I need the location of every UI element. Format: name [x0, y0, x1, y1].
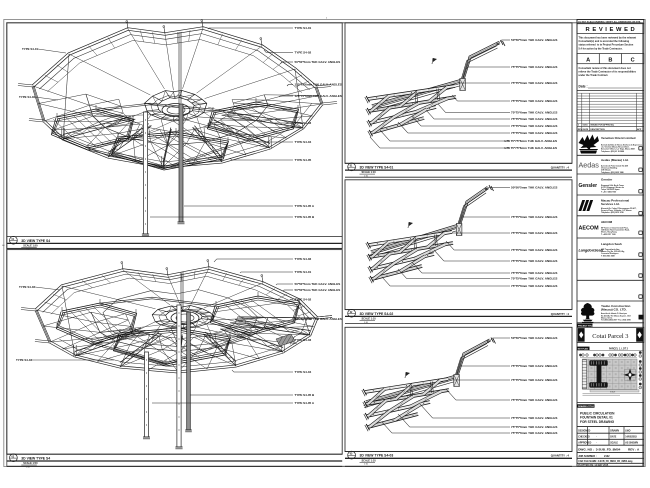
svg-text:50*50*5mm THK GALV. ANGLES: 50*50*5mm THK GALV. ANGLES — [295, 288, 341, 292]
svg-text:AECOM: AECOM — [601, 220, 613, 224]
svg-text:APPROVED: APPROVED — [578, 442, 591, 445]
svg-text:TYPE S4-03: TYPE S4-03 — [16, 358, 32, 362]
svg-text:T: +81 3 6406 7500: T: +81 3 6406 7500 — [601, 190, 616, 193]
svg-text:TYPE S4-01: TYPE S4-01 — [295, 270, 312, 274]
svg-text:TYPE S4-03: TYPE S4-03 — [295, 121, 312, 125]
svg-text:75*75*6mm THK GALV. ANGLES: 75*75*6mm THK GALV. ANGLES — [511, 364, 557, 368]
svg-text:JOB NUMBER :: JOB NUMBER : — [578, 455, 597, 458]
svg-text:Date :: Date : — [579, 85, 588, 89]
svg-text:Venetian Orient Limited: Venetian Orient Limited — [601, 136, 636, 140]
svg-text:75*75*6mm THK GALV. ANGLES: 75*75*6mm THK GALV. ANGLES — [511, 378, 557, 382]
svg-text:TYPE S4-05: TYPE S4-05 — [295, 158, 312, 162]
svg-text:AECOM: AECOM — [579, 226, 600, 232]
svg-text:T: +852 2317 7000: T: +852 2317 7000 — [601, 234, 616, 236]
svg-text:75*75*6mm THK GALV. ANGLES: 75*75*6mm THK GALV. ANGLES — [511, 124, 557, 128]
svg-text:R E V I E W E D: R E V I E W E D — [586, 27, 636, 33]
svg-text:TYPE S4-02: TYPE S4-02 — [19, 285, 35, 289]
svg-text:75*75*6mm THK GALV. ANGLES: 75*75*6mm THK GALV. ANGLES — [511, 248, 557, 252]
svg-text:C: C — [631, 57, 635, 63]
svg-text:75*75*6mm THK GALV. ANGLES: 75*75*6mm THK GALV. ANGLES — [511, 99, 557, 103]
svg-text:Gensler: Gensler — [579, 183, 598, 189]
svg-text:FOR STEEL DRAWING: FOR STEEL DRAWING — [580, 420, 615, 424]
svg-text:Consultant(s) and is accorded: Consultant(s) and is accorded the follow… — [579, 40, 630, 43]
svg-text:B: B — [608, 57, 612, 63]
svg-text:Consultant review of this docu: Consultant review of this document does … — [579, 67, 631, 70]
svg-text:75*75*6mm THK GALV. ANGLES: 75*75*6mm THK GALV. ANGLES — [511, 231, 557, 235]
svg-text:75*75*6mm THK GALV. ANGLES: 75*75*6mm THK GALV. ANGLES — [511, 416, 557, 420]
svg-text:75*75*6mm THK GALV. ANGLES: 75*75*6mm THK GALV. ANGLES — [511, 81, 557, 85]
svg-text:DATE: DATE — [610, 436, 617, 439]
svg-text:50*50*5mm THK GALV. ANGLES: 50*50*5mm THK GALV. ANGLES — [511, 38, 557, 42]
svg-text:Tel: (853) 2832 2877 Fax: 283: Tel: (853) 2832 2877 Fax: 2832 2878 — [601, 320, 631, 322]
svg-text:This document has been reviewe: This document has been reviewed by the r… — [579, 37, 637, 40]
svg-text:75*75*6mm THK GALV. ANGLES: 75*75*6mm THK GALV. ANGLES — [511, 398, 557, 402]
svg-text:DESIGNED: DESIGNED — [578, 430, 590, 432]
svg-text:relieve the Trade Contractor o: relieve the Trade Contractor of its resp… — [579, 70, 637, 73]
svg-text:APP: APP — [637, 128, 642, 131]
svg-text:Gensler: Gensler — [601, 178, 613, 182]
svg-text:TYPE S4-04: TYPE S4-04 — [295, 140, 312, 144]
svg-text:75*75*6mm THK GALV. ANGLES: 75*75*6mm THK GALV. ANGLES — [511, 215, 557, 219]
svg-text:TYPE S4-05 A: TYPE S4-05 A — [295, 204, 315, 208]
svg-text:TYPE S4-02: TYPE S4-02 — [295, 257, 312, 261]
svg-text:75*75*6mm THK GALV. ANGLES: 75*75*6mm THK GALV. ANGLES — [511, 65, 557, 69]
svg-text:DWG. NO : 3-SUB_FD_8M04: DWG. NO : 3-SUB_FD_8M04 — [578, 448, 620, 452]
svg-text:SCALE 1:50: SCALE 1:50 — [23, 462, 38, 465]
svg-text:SCALE 1:10: SCALE 1:10 — [362, 318, 377, 321]
svg-text:LangdonSeah: LangdonSeah — [579, 249, 604, 253]
svg-text:Telephone: (853) 2833 1988: Telephone: (853) 2833 1988 — [601, 172, 624, 174]
svg-text:AS SHOWN: AS SHOWN — [625, 442, 638, 445]
svg-text:5.4 for action by the Trade Co: 5.4 for action by the Trade Contractor. — [579, 47, 623, 50]
svg-text:ISSUED FOR APPROVAL: ISSUED FOR APPROVAL — [590, 124, 614, 127]
svg-text:QUANTITY : 4: QUANTITY : 4 — [551, 166, 570, 170]
svg-text:A: A — [586, 57, 590, 63]
svg-text:125*75*6mm THK GALV. ANGLES: 125*75*6mm THK GALV. ANGLES — [295, 94, 342, 98]
svg-text:50*50*5mm THK GALV. ANGLES: 50*50*5mm THK GALV. ANGLES — [295, 60, 341, 64]
svg-text:TYPE S4-04: TYPE S4-04 — [295, 370, 312, 374]
svg-text:125*75*6mm THK GALV. ANGLES: 125*75*6mm THK GALV. ANGLES — [295, 317, 342, 321]
svg-text:Aedas: Aedas — [579, 161, 600, 170]
svg-text:3D VIEW TYPE S4: 3D VIEW TYPE S4 — [21, 456, 50, 460]
svg-text:DRAWN: DRAWN — [610, 429, 619, 432]
svg-text:QUANTITY : 4: QUANTITY : 4 — [551, 454, 570, 458]
svg-text:75*75*6mm THK GALV. ANGLES: 75*75*6mm THK GALV. ANGLES — [511, 277, 557, 281]
svg-text:TYPE S4-02: TYPE S4-02 — [295, 298, 312, 302]
svg-text:TYPE S4-03: TYPE S4-03 — [295, 338, 312, 342]
svg-text:status referred to in Project: status referred to in Project Procedure … — [579, 44, 634, 47]
svg-text:QUANTITY : 4: QUANTITY : 4 — [551, 312, 570, 316]
svg-text:75*75*6mm THK GALV. ANGLES: 75*75*6mm THK GALV. ANGLES — [511, 284, 557, 288]
svg-text:TYPE S4-02: TYPE S4-02 — [19, 95, 35, 99]
svg-text:75*75*6mm THK GALV. ANGLES: 75*75*6mm THK GALV. ANGLES — [511, 425, 557, 429]
svg-text:14/05/2015: 14/05/2015 — [625, 436, 637, 439]
svg-text:Telephone: (853) 81 18 2888: Telephone: (853) 81 18 2888 — [601, 151, 624, 153]
svg-text:(Macau) CO. LTD.: (Macau) CO. LTD. — [601, 308, 627, 312]
svg-text:T: 853 2833 3088: T: 853 2833 3088 — [601, 255, 615, 257]
svg-text:DRAWING TITLE: DRAWING TITLE — [578, 405, 594, 408]
svg-text:Aedas (Macau) Ltd.: Aedas (Macau) Ltd. — [601, 158, 629, 162]
svg-text:CHECKED: CHECKED — [578, 437, 590, 439]
svg-text:TYPE S4-05 A: TYPE S4-05 A — [295, 401, 315, 405]
svg-text:Cotai Parcel 3: Cotai Parcel 3 — [592, 333, 628, 340]
svg-text:125*75*6mm THK GALV. ANGLES: 125*75*6mm THK GALV. ANGLES — [295, 83, 342, 87]
svg-text:2132: 2132 — [604, 455, 610, 458]
svg-text:KEY PLAN: KEY PLAN — [578, 347, 589, 350]
svg-text:3D VIEW TYPE S4: 3D VIEW TYPE S4 — [21, 239, 50, 243]
svg-text:75*75*6mm THK GALV. ANGLES: 75*75*6mm THK GALV. ANGLES — [511, 271, 557, 275]
svg-text:TYPE S4-05 B: TYPE S4-05 B — [295, 393, 316, 397]
svg-text:REV : A: REV : A — [628, 448, 640, 452]
svg-text:LWO: LWO — [625, 430, 630, 432]
svg-text:SCALE: SCALE — [610, 442, 618, 445]
svg-text:50*50*5mm THK GALV. ANGLES: 50*50*5mm THK GALV. ANGLES — [511, 336, 557, 340]
svg-text:3D VIEW TYPE S4-03: 3D VIEW TYPE S4-03 — [360, 454, 394, 458]
svg-text:TYPE S4-01: TYPE S4-01 — [295, 26, 312, 30]
svg-text:75*75*6mm THK GALV. ANGLES: 75*75*6mm THK GALV. ANGLES — [511, 259, 557, 263]
svg-text:TYPE S4-05 B: TYPE S4-05 B — [295, 215, 316, 219]
svg-text:TYPE S4-02: TYPE S4-02 — [295, 51, 312, 55]
svg-text:DATE: DATE — [583, 128, 589, 131]
svg-text:L75 75*75*6mm THK GALV. ANGLES: L75 75*75*6mm THK GALV. ANGLES — [505, 139, 558, 143]
svg-text:75*75*6mm THK GALV. ANGLES: 75*75*6mm THK GALV. ANGLES — [511, 431, 557, 435]
svg-text:SCALE 1:10: SCALE 1:10 — [362, 459, 377, 462]
svg-text:SCALE 1:10: SCALE 1:10 — [362, 171, 377, 174]
svg-text:75*75*6mm THK GALV. ANGLES: 75*75*6mm THK GALV. ANGLES — [511, 131, 557, 135]
svg-text:Telephone: (853) 2870 3218: Telephone: (853) 2870 3218 — [601, 212, 624, 214]
svg-text:TYPE S4-01: TYPE S4-01 — [22, 47, 38, 51]
svg-text:SCALE 1:50: SCALE 1:50 — [23, 245, 38, 248]
svg-text:PARCEL 1, LOT 2: PARCEL 1, LOT 2 — [609, 348, 629, 351]
svg-text:Services Ltd.: Services Ltd. — [601, 202, 620, 206]
svg-text:75*75*6mm THK GALV. ANGLES: 75*75*6mm THK GALV. ANGLES — [511, 117, 557, 121]
svg-text:L75 75*75*6mm THK GALV. ANGLES: L75 75*75*6mm THK GALV. ANGLES — [505, 146, 558, 150]
svg-text:under the Trade Contract.: under the Trade Contract. — [579, 74, 609, 77]
svg-text:DO NOT SCALE DRAWING. VERIFY A: DO NOT SCALE DRAWING. VERIFY ALL DIMENSI… — [578, 21, 641, 24]
svg-text:75*75*6mm THK GALV. ANGLES: 75*75*6mm THK GALV. ANGLES — [511, 111, 557, 115]
svg-text:3D VIEW TYPE S4-02: 3D VIEW TYPE S4-02 — [360, 312, 394, 316]
svg-text:50*50*5mm THK GALV. ANGLES: 50*50*5mm THK GALV. ANGLES — [511, 186, 557, 190]
svg-text:Langdon Seah: Langdon Seah — [601, 242, 622, 246]
svg-text:3D VIEW TYPE S4-01: 3D VIEW TYPE S4-01 — [360, 166, 394, 170]
svg-text:PLOTTED ON: 14 MAY 2015: PLOTTED ON: 14 MAY 2015 — [578, 464, 609, 467]
svg-text:50*50*5mm THK GALV. ANGLES: 50*50*5mm THK GALV. ANGLES — [295, 282, 341, 286]
svg-text:CAD FILE NAME: 3-SUB_FD_8M04_F: CAD FILE NAME: 3-SUB_FD_8M04_FD_8M04.dwg — [578, 460, 633, 463]
